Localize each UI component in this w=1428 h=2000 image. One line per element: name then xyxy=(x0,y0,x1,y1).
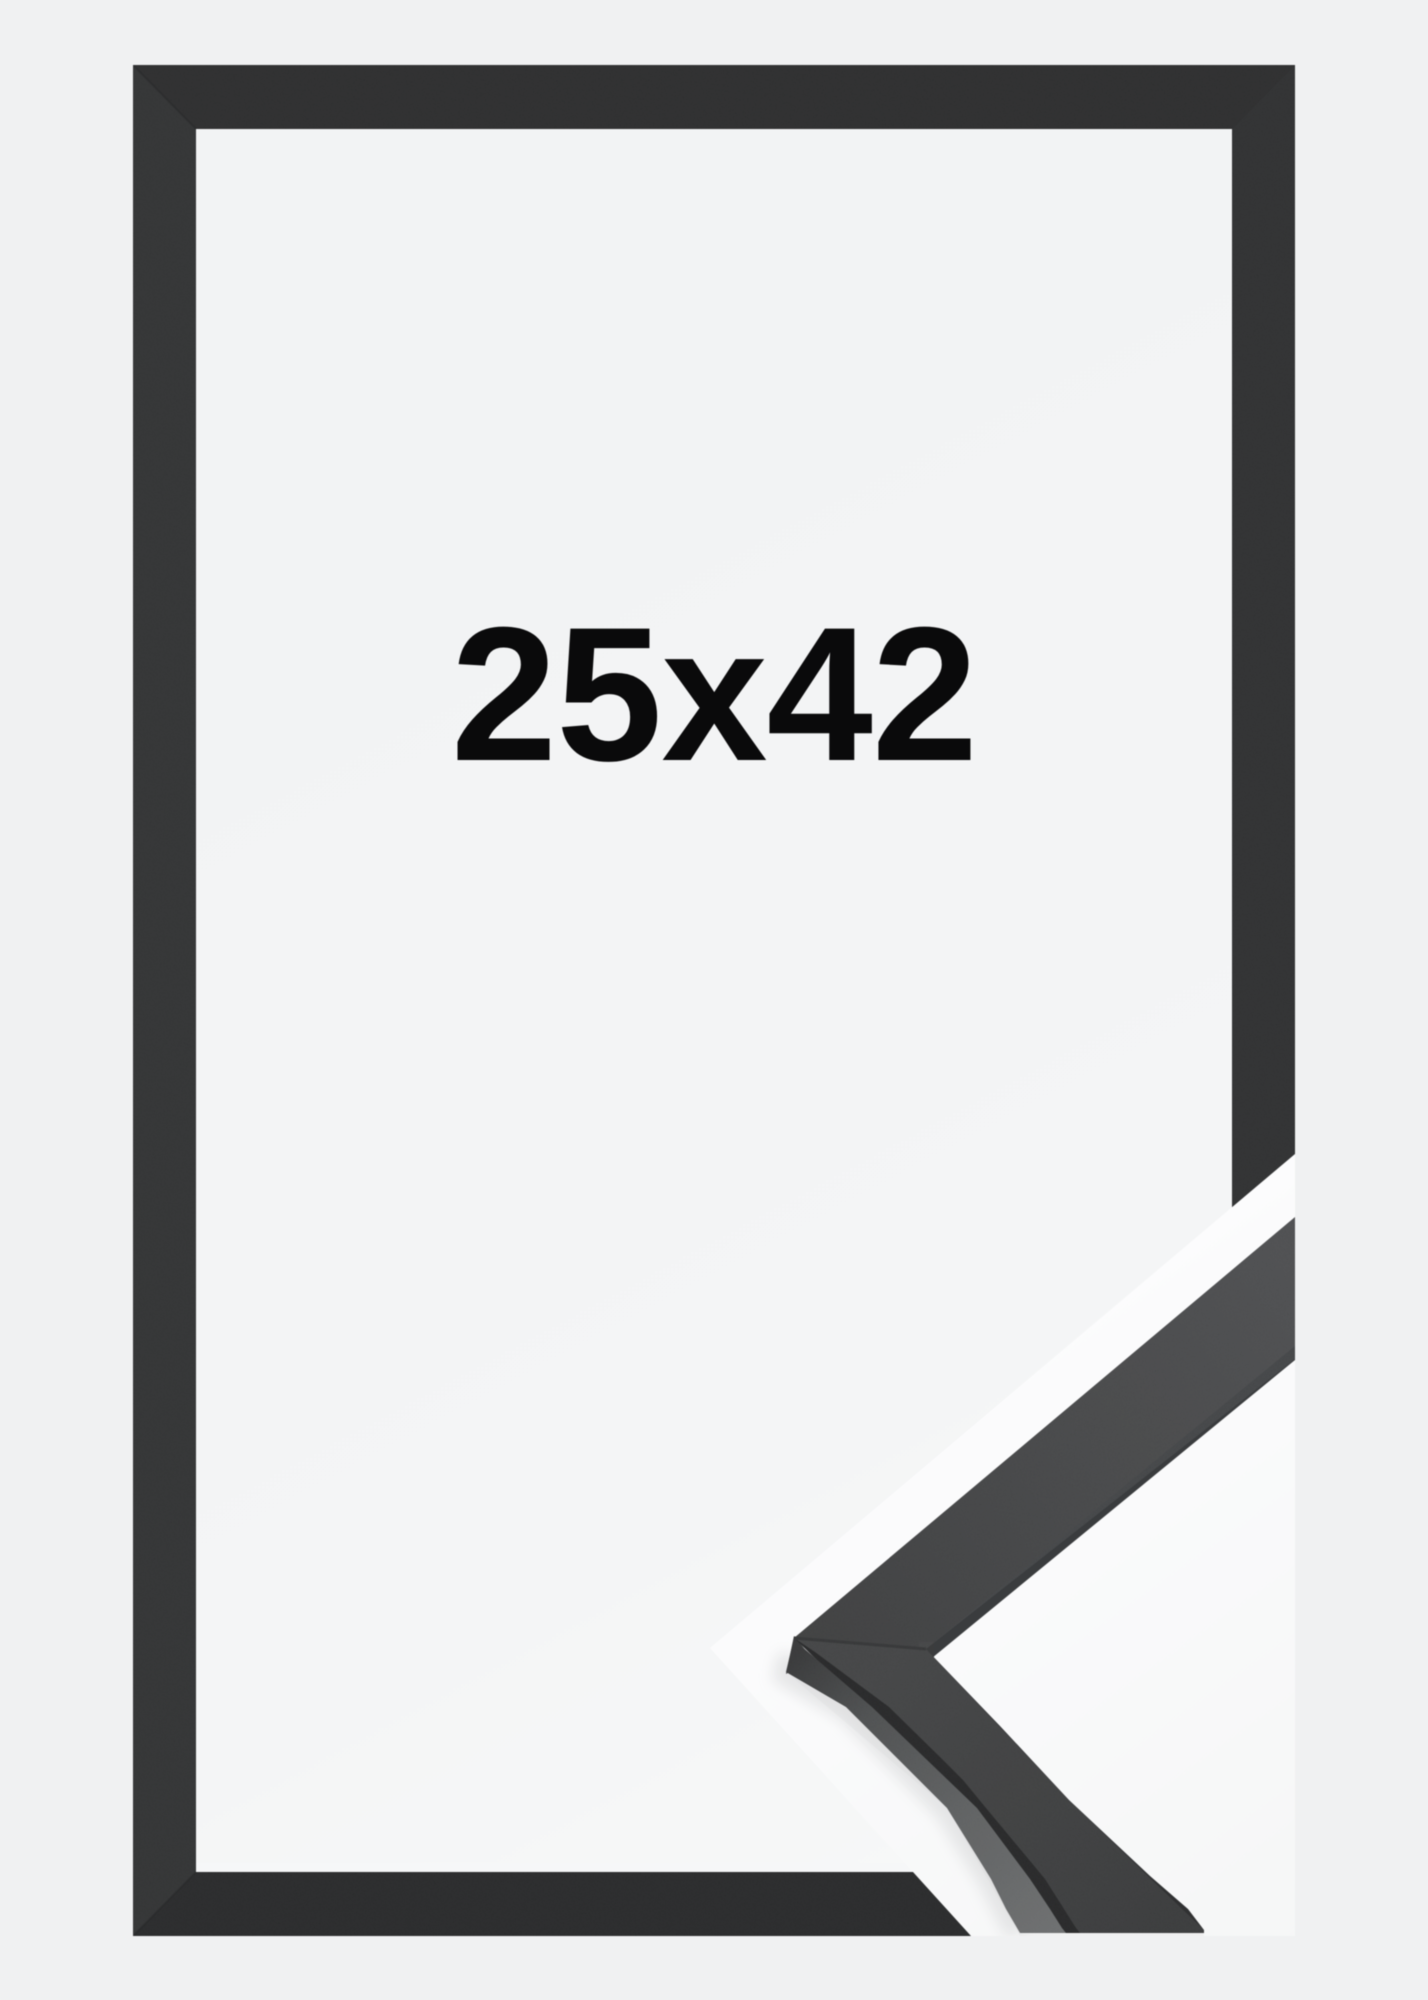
svg-text:25x42: 25x42 xyxy=(451,588,977,801)
